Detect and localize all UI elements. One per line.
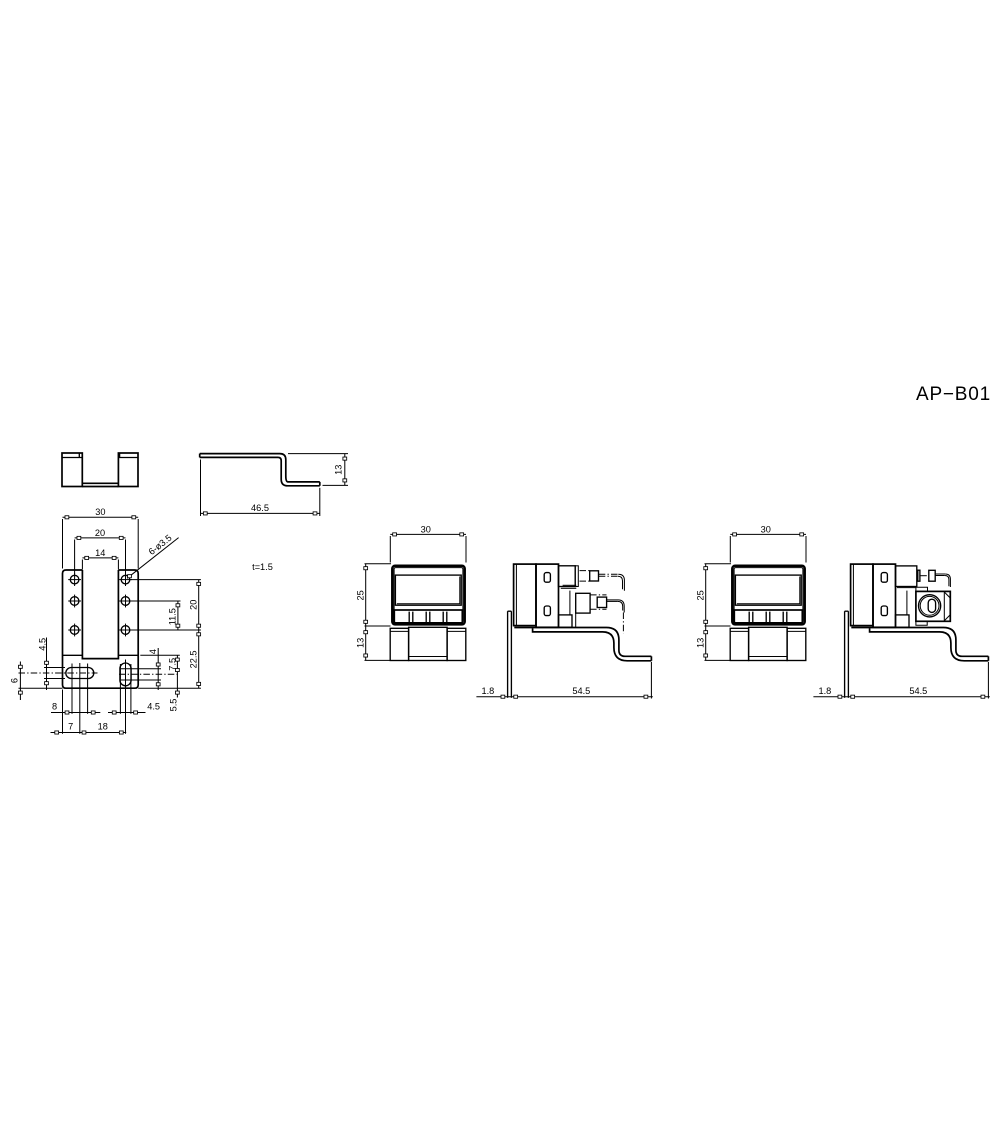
svg-text:13: 13	[356, 638, 366, 648]
svg-text:4.5: 4.5	[147, 702, 160, 712]
svg-text:t=1.5: t=1.5	[252, 562, 273, 572]
svg-text:8: 8	[52, 702, 57, 712]
svg-text:13: 13	[333, 465, 343, 475]
svg-text:30: 30	[421, 524, 431, 534]
svg-text:46.5: 46.5	[251, 503, 269, 513]
svg-text:25: 25	[356, 590, 366, 600]
svg-text:4.5: 4.5	[37, 638, 47, 651]
svg-text:30: 30	[95, 507, 105, 517]
svg-text:7: 7	[68, 722, 73, 732]
svg-text:11.5: 11.5	[168, 608, 178, 625]
svg-text:18: 18	[98, 722, 108, 732]
svg-text:22.5: 22.5	[188, 650, 198, 668]
svg-text:5.5: 5.5	[169, 699, 179, 712]
svg-text:1.8: 1.8	[482, 686, 495, 696]
svg-text:20: 20	[95, 528, 105, 538]
svg-text:14: 14	[95, 548, 105, 558]
svg-text:6: 6	[9, 678, 19, 683]
svg-text:54.5: 54.5	[572, 686, 590, 696]
svg-text:7.5: 7.5	[167, 658, 177, 671]
svg-text:AP−B01: AP−B01	[916, 384, 991, 405]
svg-text:4: 4	[148, 649, 158, 654]
svg-text:20: 20	[188, 600, 198, 610]
